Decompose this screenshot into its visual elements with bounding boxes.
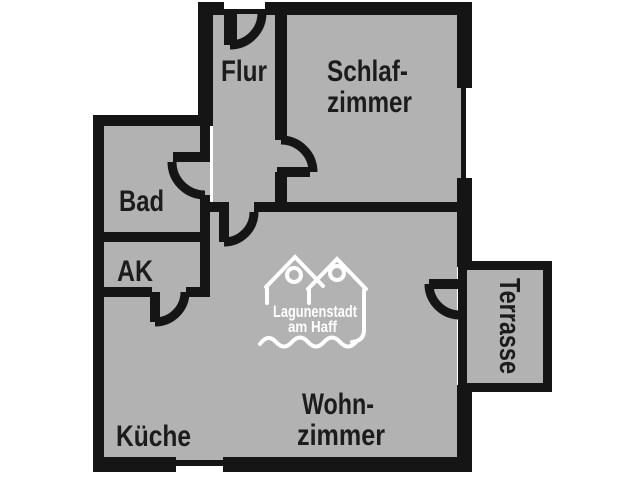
label-schlafzimmer-line2: zimmer <box>327 86 412 119</box>
bad-door-leaf <box>173 152 210 162</box>
logo-text-line2: am Haff <box>288 319 338 336</box>
wall-right-bottom <box>457 385 472 472</box>
wall-bad-ak-east-lower <box>200 195 210 297</box>
wall-bad-top <box>93 115 213 126</box>
floorplan-image: Flur Schlaf- zimmer Bad AK Küche Wohn- z… <box>0 0 640 480</box>
label-wohnzimmer-line1: Wohn- <box>302 388 374 421</box>
wall-top-right <box>265 2 472 15</box>
label-wohnzimmer-line2: zimmer <box>297 419 385 452</box>
wall-ak-south-right <box>186 287 210 297</box>
wall-right-mid <box>457 183 472 267</box>
wall-left <box>93 115 104 472</box>
wall-bad-ak-divider <box>104 232 200 242</box>
label-terrasse: Terrasse <box>493 278 525 374</box>
wall-flur-west <box>198 2 213 126</box>
label-flur: Flur <box>221 55 267 88</box>
wall-ak-south-left <box>104 287 152 297</box>
wall-right-top <box>457 2 472 83</box>
wall-schlafzimmer-west-upper <box>275 15 287 140</box>
label-schlafzimmer-line1: Schlaf- <box>327 55 408 88</box>
schlafzimmer-window-tick-bottom <box>457 178 472 183</box>
schlafzimmer-window-line <box>461 83 466 183</box>
schlafzimmer-door-leaf <box>277 167 310 177</box>
wall-bottom-left <box>93 457 176 472</box>
flur-door-opening <box>227 202 255 212</box>
wall-bottom-right <box>223 457 472 472</box>
label-kueche: Küche <box>116 420 191 453</box>
wall-flur-south-left <box>210 202 229 212</box>
kueche-window-line <box>176 460 223 466</box>
label-ak: AK <box>117 255 153 288</box>
label-bad: Bad <box>119 185 164 218</box>
floorplan-svg: Flur Schlaf- zimmer Bad AK Küche Wohn- z… <box>0 0 640 480</box>
wall-schlafzimmer-west-lower <box>275 172 287 212</box>
